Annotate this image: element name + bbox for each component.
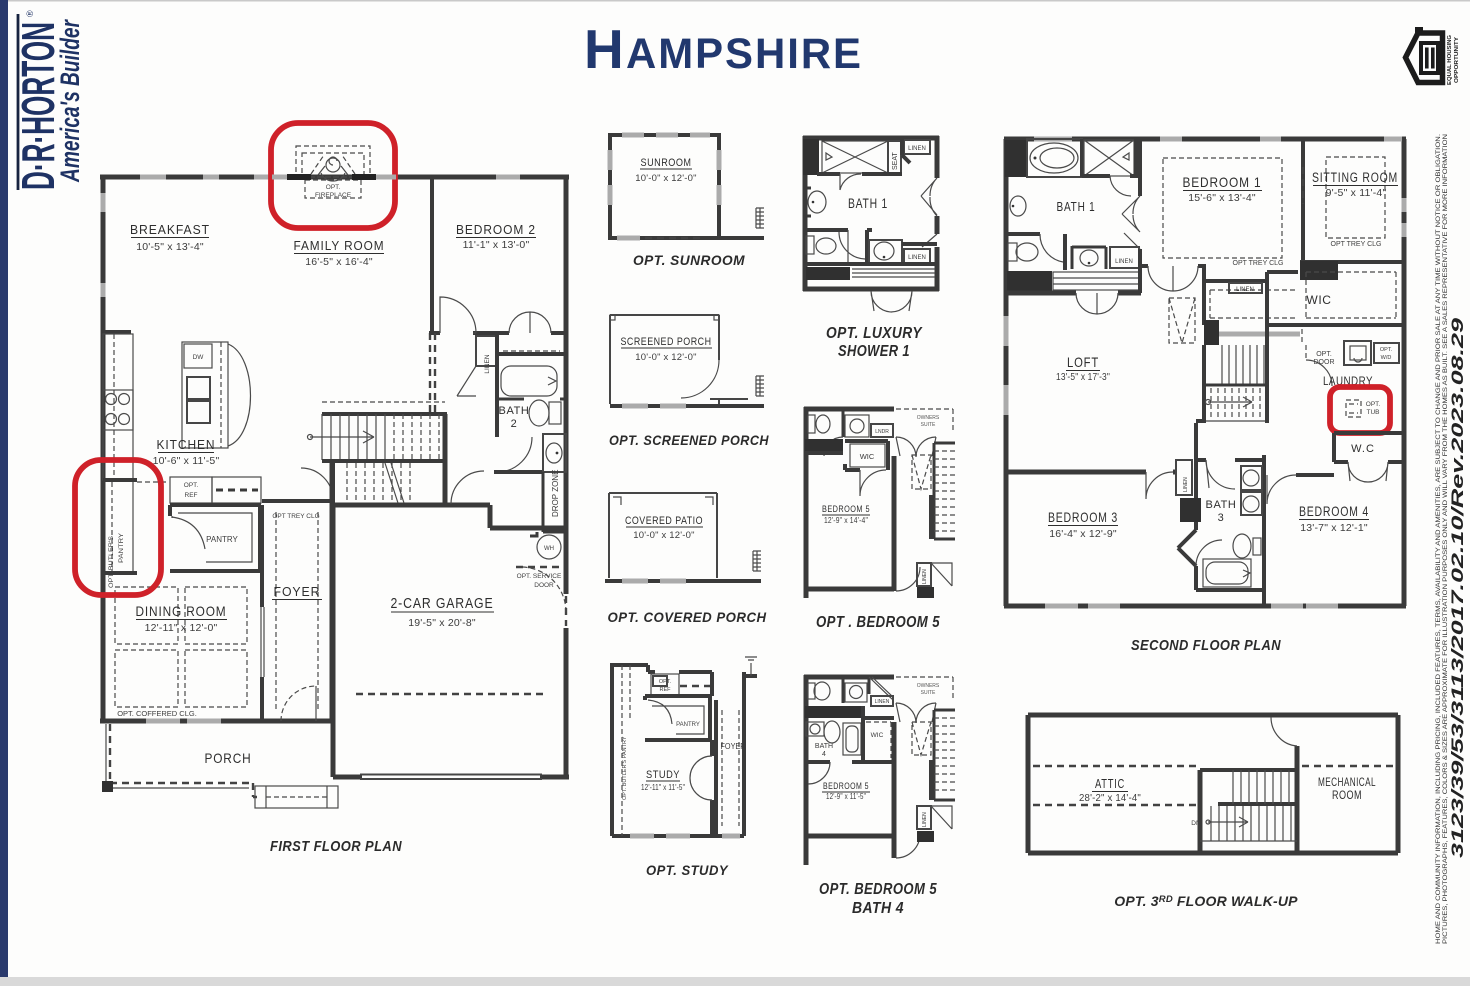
- svg-text:W.C: W.C: [1351, 443, 1375, 455]
- svg-text:W/D: W/D: [1381, 355, 1392, 361]
- svg-text:BATH: BATH: [815, 743, 833, 750]
- svg-text:OPT. 3RDFLOOR WALK-UP: OPT. 3RDFLOOR WALK-UP: [1114, 893, 1298, 909]
- svg-text:LINEN: LINEN: [1115, 259, 1133, 265]
- svg-text:BREAKFAST: BREAKFAST: [130, 222, 210, 237]
- svg-text:LINEN: LINEN: [908, 255, 926, 261]
- svg-text:REF: REF: [660, 687, 672, 693]
- svg-text:BATH: BATH: [499, 405, 530, 417]
- svg-text:OPT. COVERED PORCH: OPT. COVERED PORCH: [608, 609, 767, 625]
- svg-text:12'-9" x 11'-5": 12'-9" x 11'-5": [826, 792, 866, 801]
- svg-text:OPT . BEDROOM 5: OPT . BEDROOM 5: [816, 614, 940, 631]
- svg-text:LINEN: LINEN: [908, 146, 926, 152]
- svg-text:ATTIC: ATTIC: [1095, 776, 1125, 791]
- svg-text:LNDR: LNDR: [875, 429, 889, 435]
- svg-text:LINEN: LINEN: [1236, 287, 1254, 293]
- svg-text:DN: DN: [1191, 820, 1201, 827]
- svg-text:BEDROOM 3: BEDROOM 3: [1048, 509, 1118, 525]
- svg-text:11'-1" x 13'-0": 11'-1" x 13'-0": [463, 239, 530, 251]
- svg-text:BEDROOM 2: BEDROOM 2: [456, 222, 536, 237]
- svg-text:OPT.: OPT.: [326, 184, 341, 191]
- svg-text:28'-2" x 14'-4": 28'-2" x 14'-4": [1079, 792, 1141, 804]
- svg-text:13'-7" x 12'-1": 13'-7" x 12'-1": [1300, 522, 1368, 534]
- svg-text:OPT. SERVICE: OPT. SERVICE: [517, 573, 562, 580]
- svg-text:DW: DW: [193, 354, 205, 361]
- svg-text:SEAT: SEAT: [892, 152, 899, 170]
- svg-text:OPT. BEDROOM 5: OPT. BEDROOM 5: [819, 881, 937, 898]
- svg-text:16'-5" x 16'-4": 16'-5" x 16'-4": [305, 256, 373, 268]
- svg-text:America's Builder: America's Builder: [55, 19, 85, 183]
- svg-text:FAMILY ROOM: FAMILY ROOM: [294, 238, 385, 253]
- svg-text:OPT. BUTLER'S PANTRY: OPT. BUTLER'S PANTRY: [622, 736, 628, 800]
- svg-text:H: H: [584, 18, 625, 80]
- svg-text:SHOWER 1: SHOWER 1: [838, 343, 910, 360]
- svg-text:WIC: WIC: [1306, 293, 1331, 307]
- svg-text:FOYER: FOYER: [721, 742, 746, 751]
- svg-text:OPPORTUNITY: OPPORTUNITY: [1454, 37, 1460, 83]
- svg-text:SUITE: SUITE: [921, 690, 936, 696]
- svg-text:4: 4: [822, 751, 826, 758]
- svg-text:DINING ROOM: DINING ROOM: [136, 603, 227, 619]
- svg-text:BATH: BATH: [1206, 499, 1237, 511]
- svg-text:16'-4" x 12'-9": 16'-4" x 12'-9": [1049, 528, 1117, 540]
- svg-text:LINEN: LINEN: [875, 699, 890, 705]
- svg-text:OPT.: OPT.: [1316, 351, 1332, 358]
- svg-text:OPT TREY CLG: OPT TREY CLG: [1331, 241, 1382, 248]
- svg-text:BEDROOM 5: BEDROOM 5: [822, 504, 870, 515]
- svg-text:2-CAR GARAGE: 2-CAR GARAGE: [391, 596, 494, 612]
- svg-text:WH: WH: [544, 546, 554, 552]
- svg-text:10'-0" x 12'-0": 10'-0" x 12'-0": [635, 352, 696, 363]
- svg-text:3123/39/53/3113/2017.02.10/Rev: 3123/39/53/3113/2017.02.10/Rev.2023.08.2…: [1448, 317, 1467, 858]
- svg-text:REF: REF: [185, 492, 198, 499]
- svg-text:19'-5" x 20'-8": 19'-5" x 20'-8": [408, 617, 476, 629]
- svg-text:BEDROOM 4: BEDROOM 4: [1299, 503, 1369, 519]
- svg-text:WIC: WIC: [860, 452, 875, 461]
- svg-text:TUB: TUB: [1367, 409, 1380, 416]
- svg-text:13'-5" x 17'-3": 13'-5" x 17'-3": [1056, 371, 1110, 383]
- svg-text:OPT. COFFERED CLG.: OPT. COFFERED CLG.: [117, 709, 197, 718]
- svg-text:SITTING ROOM: SITTING ROOM: [1312, 170, 1398, 185]
- svg-text:LINEN: LINEN: [922, 569, 928, 584]
- svg-text:12'-11" x 12'-0": 12'-11" x 12'-0": [145, 622, 218, 634]
- svg-text:LINEN: LINEN: [484, 354, 491, 373]
- svg-text:PANTRY: PANTRY: [676, 722, 700, 728]
- svg-text:DOOR: DOOR: [534, 582, 554, 589]
- svg-text:OPT.: OPT.: [1380, 347, 1393, 353]
- svg-text:OPT. BUTLER'S: OPT. BUTLER'S: [108, 535, 115, 588]
- svg-text:BATH 4: BATH 4: [852, 900, 904, 917]
- svg-text:AMPSHIRE: AMPSHIRE: [626, 31, 863, 78]
- svg-text:SCREENED PORCH: SCREENED PORCH: [621, 336, 712, 348]
- svg-text:WIC: WIC: [871, 732, 884, 739]
- svg-text:DOOR: DOOR: [1314, 359, 1335, 366]
- svg-text:10'-0" x 12'-0": 10'-0" x 12'-0": [633, 530, 694, 541]
- svg-text:2: 2: [511, 418, 518, 430]
- svg-text:10'-0" x 12'-0": 10'-0" x 12'-0": [635, 173, 696, 184]
- svg-text:10'-5" x 13'-4": 10'-5" x 13'-4": [136, 241, 204, 253]
- svg-text:HOME AND COMMUNITY INFORMATION: HOME AND COMMUNITY INFORMATION, INCLUDIN…: [1435, 134, 1442, 944]
- svg-text:LINEN: LINEN: [1183, 477, 1189, 492]
- svg-text:3: 3: [1218, 512, 1225, 524]
- svg-text:BEDROOM 1: BEDROOM 1: [1183, 174, 1262, 190]
- svg-text:OWNERS: OWNERS: [917, 415, 940, 421]
- svg-text:STUDY: STUDY: [646, 769, 680, 781]
- svg-text:FIREPLACE: FIREPLACE: [315, 192, 352, 199]
- svg-text:OPT TREY CLG: OPT TREY CLG: [272, 513, 319, 520]
- svg-text:OPT.: OPT.: [1366, 401, 1381, 408]
- svg-text:PANTRY: PANTRY: [206, 535, 238, 544]
- svg-text:SUNROOM: SUNROOM: [641, 157, 692, 169]
- svg-text:OPT. SCREENED PORCH: OPT. SCREENED PORCH: [609, 432, 769, 448]
- svg-text:15'-6" x 13'-4": 15'-6" x 13'-4": [1188, 192, 1256, 204]
- svg-text:PORCH: PORCH: [205, 750, 252, 766]
- svg-text:ROOM: ROOM: [1332, 788, 1362, 802]
- svg-text:FIRST FLOOR PLAN: FIRST FLOOR PLAN: [270, 838, 403, 855]
- svg-text:BEDROOM 5: BEDROOM 5: [823, 781, 869, 792]
- svg-text:EQUAL HOUSING: EQUAL HOUSING: [1447, 35, 1453, 85]
- svg-text:MECHANICAL: MECHANICAL: [1318, 775, 1376, 789]
- svg-text:BATH 1: BATH 1: [1057, 199, 1096, 214]
- svg-text:BATH 1: BATH 1: [848, 195, 888, 211]
- svg-text:SUITE: SUITE: [921, 422, 936, 428]
- svg-text:OPT. STUDY: OPT. STUDY: [646, 862, 729, 878]
- svg-text:OPT.: OPT.: [659, 679, 672, 685]
- svg-text:LOFT: LOFT: [1067, 354, 1099, 370]
- svg-text:OPT.: OPT.: [184, 482, 199, 489]
- svg-text:PANTRY: PANTRY: [118, 532, 125, 563]
- svg-text:LINEN: LINEN: [922, 812, 928, 827]
- svg-text:12'-11" x 11'-5": 12'-11" x 11'-5": [641, 782, 685, 792]
- svg-text:COVERED PATIO: COVERED PATIO: [625, 515, 703, 527]
- svg-text:10'-6" x 11'-5": 10'-6" x 11'-5": [153, 455, 220, 467]
- svg-text:12'-9" x 14'-4": 12'-9" x 14'-4": [824, 516, 868, 525]
- svg-text:DROP ZONE: DROP ZONE: [551, 470, 560, 517]
- svg-text:®: ®: [25, 10, 35, 17]
- svg-text:OPT TREY CLG: OPT TREY CLG: [1233, 260, 1284, 267]
- svg-text:9'-5" x 11'-4": 9'-5" x 11'-4": [1326, 187, 1387, 199]
- svg-text:KITCHEN: KITCHEN: [157, 437, 216, 452]
- svg-text:FOYER: FOYER: [274, 584, 321, 599]
- svg-text:OPT. LUXURY: OPT. LUXURY: [826, 325, 923, 342]
- svg-text:SECOND FLOOR PLAN: SECOND FLOOR PLAN: [1131, 637, 1282, 654]
- svg-text:OWNERS: OWNERS: [917, 683, 940, 689]
- svg-text:OPT. SUNROOM: OPT. SUNROOM: [633, 252, 745, 268]
